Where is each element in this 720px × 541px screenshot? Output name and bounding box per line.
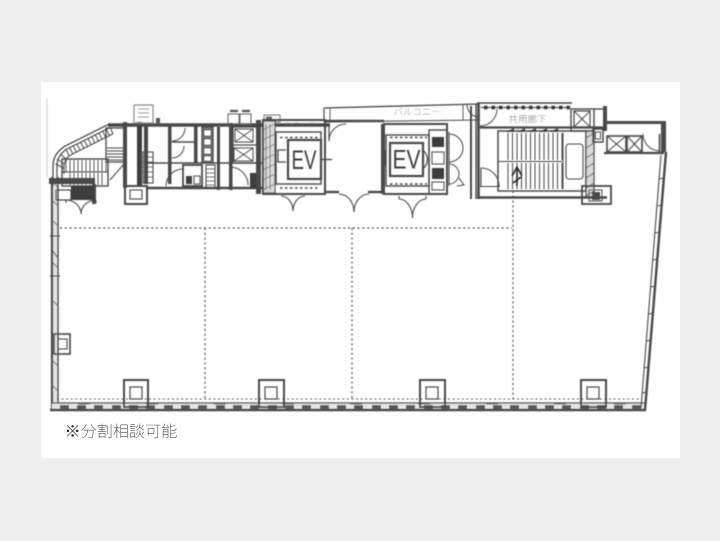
svg-text:EV: EV — [393, 145, 421, 175]
svg-text:EV: EV — [292, 145, 317, 175]
